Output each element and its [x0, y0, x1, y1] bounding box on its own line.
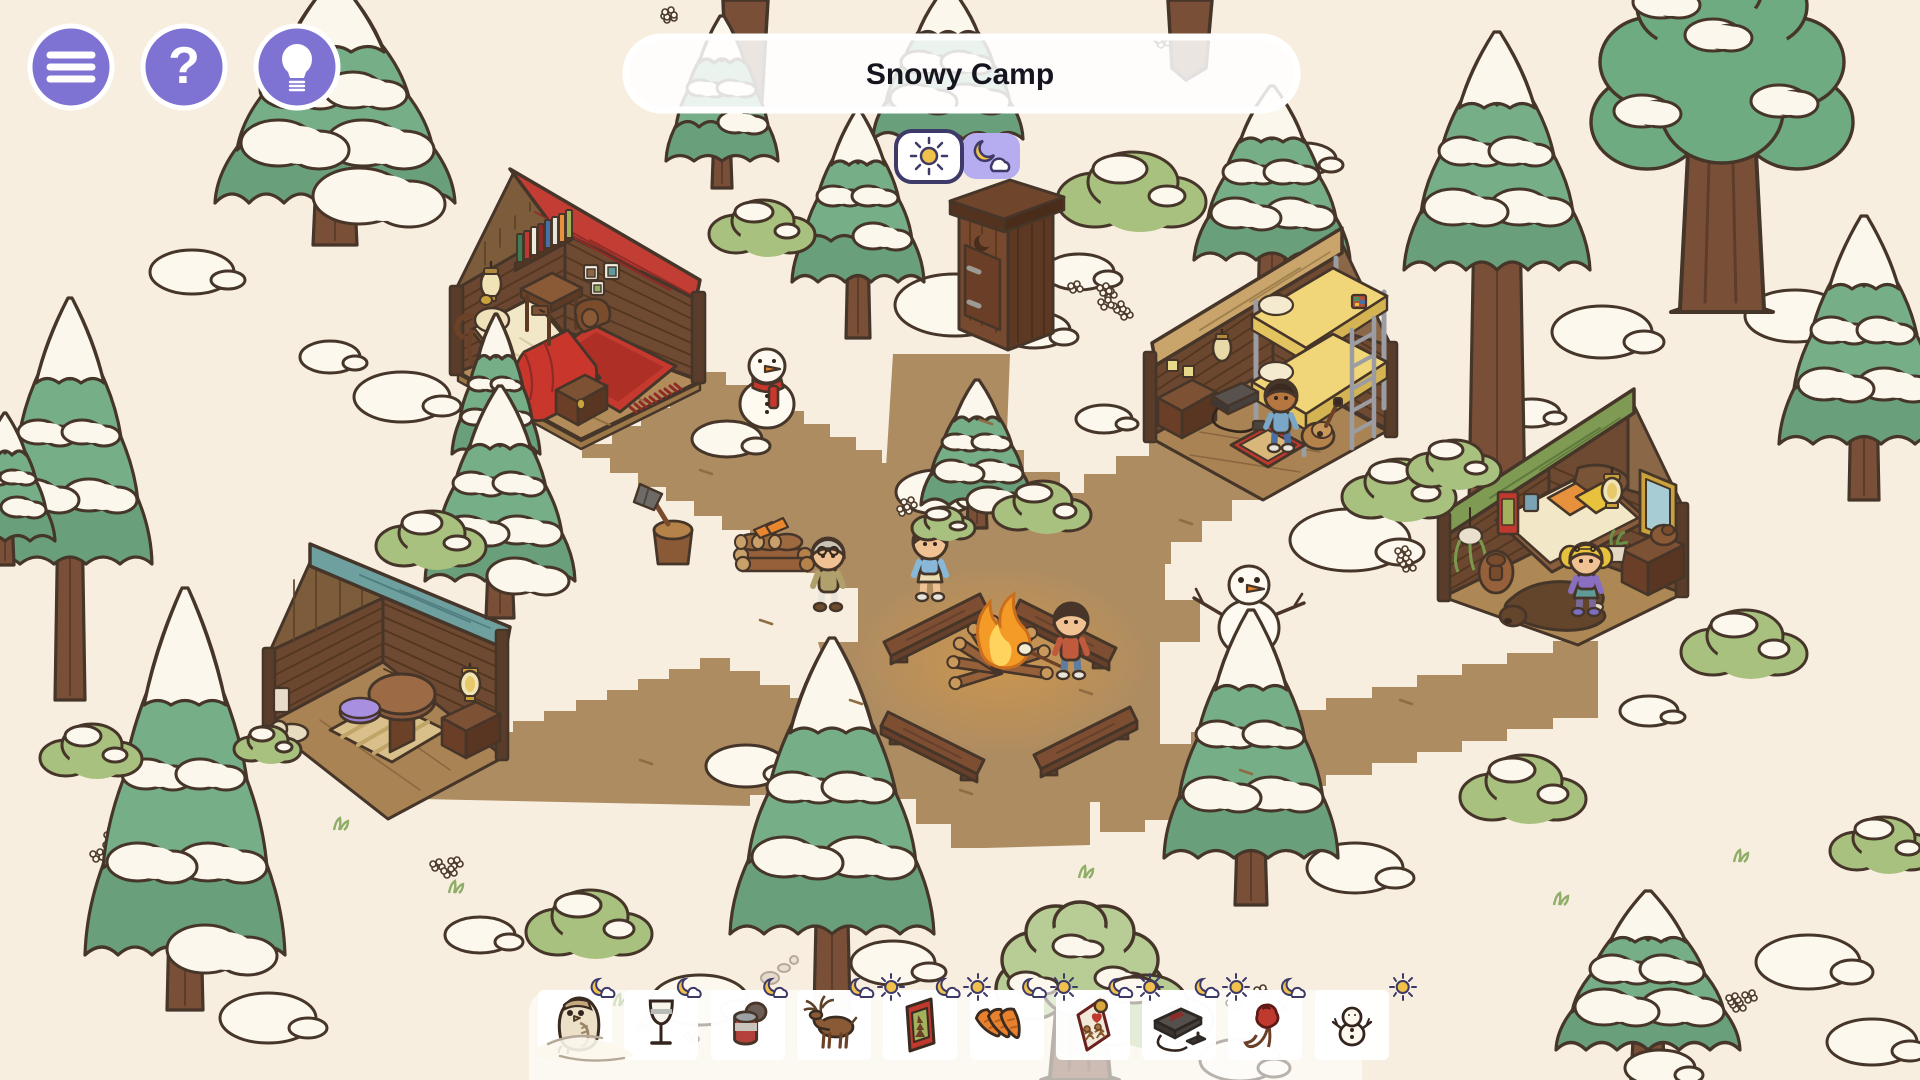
- svg-text:Snowy Camp: Snowy Camp: [866, 58, 1054, 91]
- svg-text:?: ?: [168, 37, 200, 95]
